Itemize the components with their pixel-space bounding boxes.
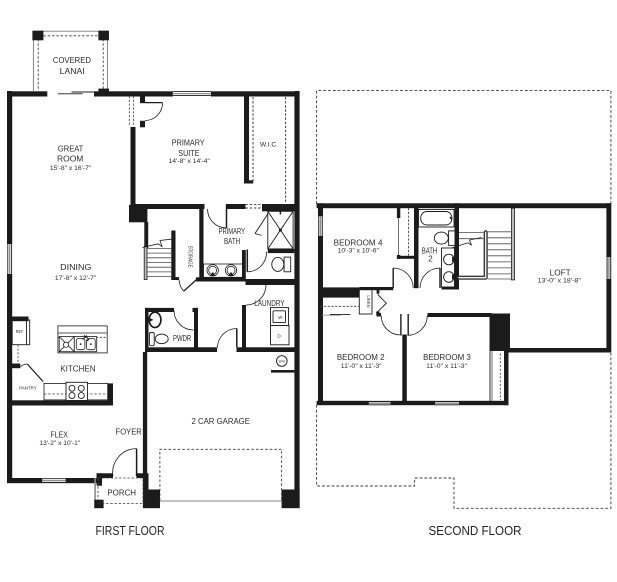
svg-text:FLEX: FLEX [50,431,68,440]
svg-text:BEDROOM 4: BEDROOM 4 [334,238,383,247]
svg-text:FIRST FLOOR: FIRST FLOOR [96,523,165,538]
svg-text:REF: REF [16,329,24,334]
svg-text:PRIMARY: PRIMARY [172,138,206,147]
svg-text:SECOND FLOOR: SECOND FLOOR [429,523,522,538]
svg-text:BEDROOM 3: BEDROOM 3 [423,353,471,362]
svg-text:14'-8" x 14'-4": 14'-8" x 14'-4" [169,158,211,165]
svg-text:PORCH: PORCH [107,488,136,497]
svg-text:W: W [278,315,283,320]
svg-text:GREAT: GREAT [58,144,84,153]
svg-text:17'-8" x 12'-7": 17'-8" x 12'-7" [55,275,97,282]
svg-text:PANTRY: PANTRY [19,385,37,390]
svg-text:DINING: DINING [60,263,91,272]
svg-text:W.I.C.: W.I.C. [260,142,278,149]
svg-text:STORAGE: STORAGE [187,246,193,268]
svg-text:PWDR: PWDR [173,334,191,343]
svg-text:W/H: W/H [279,360,286,364]
svg-text:BEDROOM 2: BEDROOM 2 [337,353,385,362]
svg-text:11'-0" x 11'-3": 11'-0" x 11'-3" [341,363,382,370]
svg-text:15'-8" x 16'-7": 15'-8" x 16'-7" [50,165,92,172]
svg-text:2: 2 [428,254,432,263]
svg-text:BATH: BATH [224,237,240,246]
svg-text:COVERED: COVERED [53,56,91,65]
svg-text:ROOM: ROOM [57,154,83,163]
svg-text:KITCHEN: KITCHEN [60,365,96,374]
svg-text:LOFT: LOFT [550,268,571,277]
svg-text:SUITE: SUITE [178,149,199,158]
svg-text:LAUNDRY: LAUNDRY [254,299,285,308]
svg-text:LINEN: LINEN [366,295,371,307]
svg-text:LANAI: LANAI [60,67,85,76]
svg-text:FOYER: FOYER [116,427,142,436]
svg-text:11'-0" x 11'-3": 11'-0" x 11'-3" [426,363,467,370]
svg-text:PRIMARY: PRIMARY [219,227,246,236]
svg-text:10'-3" x 10'-6": 10'-3" x 10'-6" [338,248,380,255]
svg-text:13'-0" x 18'-8": 13'-0" x 18'-8" [538,278,582,285]
svg-text:13'-2" x 10'-1": 13'-2" x 10'-1" [39,440,80,447]
svg-text:2 CAR GARAGE: 2 CAR GARAGE [191,417,250,426]
